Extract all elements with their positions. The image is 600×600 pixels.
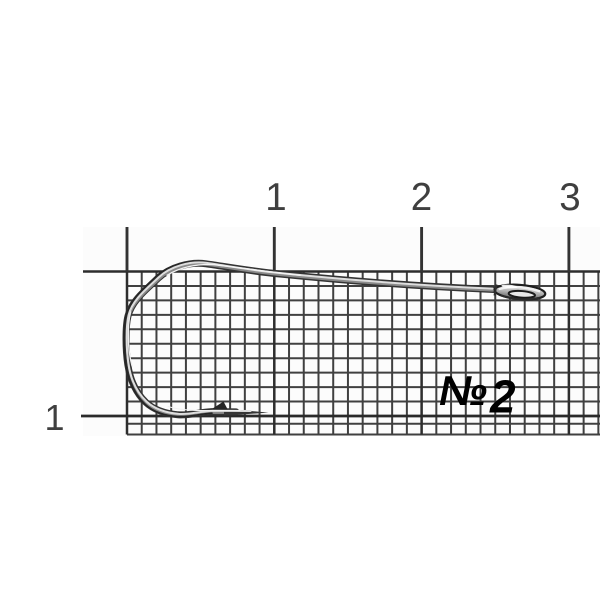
svg-text:2: 2 [411, 176, 432, 219]
svg-text:1: 1 [265, 176, 286, 219]
svg-text:2: 2 [489, 371, 516, 423]
svg-text:3: 3 [559, 176, 580, 219]
svg-text:1: 1 [44, 397, 64, 438]
svg-text:№: № [439, 367, 487, 414]
